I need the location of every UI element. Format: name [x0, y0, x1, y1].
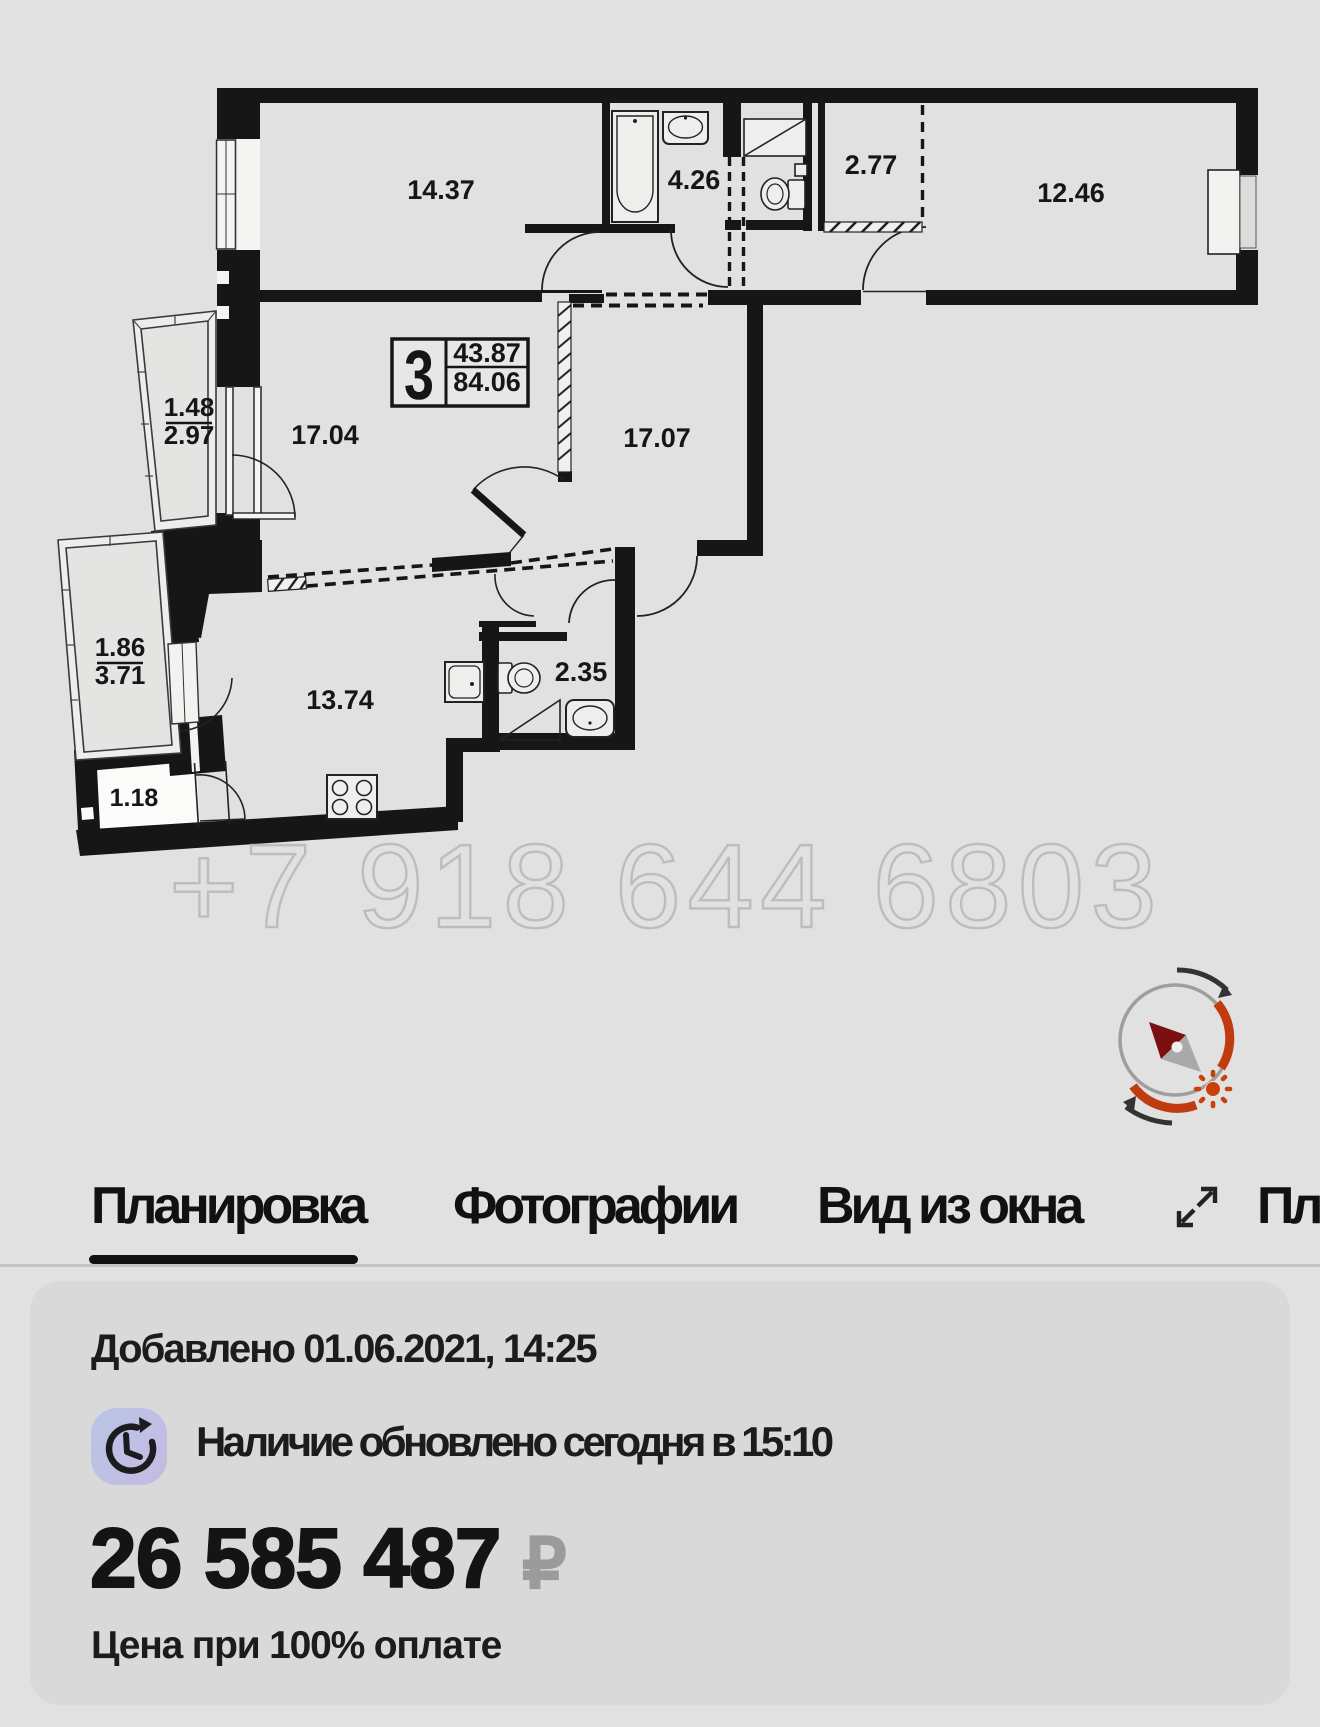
svg-text:12.46: 12.46 [1037, 178, 1105, 208]
svg-text:17.04: 17.04 [291, 420, 359, 450]
svg-text:2.35: 2.35 [555, 657, 608, 687]
svg-text:17.07: 17.07 [623, 423, 691, 453]
svg-text:2.97: 2.97 [164, 420, 215, 450]
svg-text:4.26: 4.26 [668, 165, 721, 195]
svg-text:3: 3 [404, 336, 434, 414]
svg-text:3.71: 3.71 [95, 660, 146, 690]
svg-text:13.74: 13.74 [306, 685, 374, 715]
svg-text:1.18: 1.18 [110, 784, 159, 812]
svg-text:84.06: 84.06 [453, 367, 521, 397]
svg-text:43.87: 43.87 [453, 338, 521, 368]
svg-text:+7 918 644 6803: +7 918 644 6803 [169, 820, 1163, 953]
svg-text:1.86: 1.86 [95, 632, 146, 662]
svg-text:2.77: 2.77 [845, 150, 898, 180]
svg-text:1.48: 1.48 [164, 392, 215, 422]
svg-text:14.37: 14.37 [407, 175, 475, 205]
